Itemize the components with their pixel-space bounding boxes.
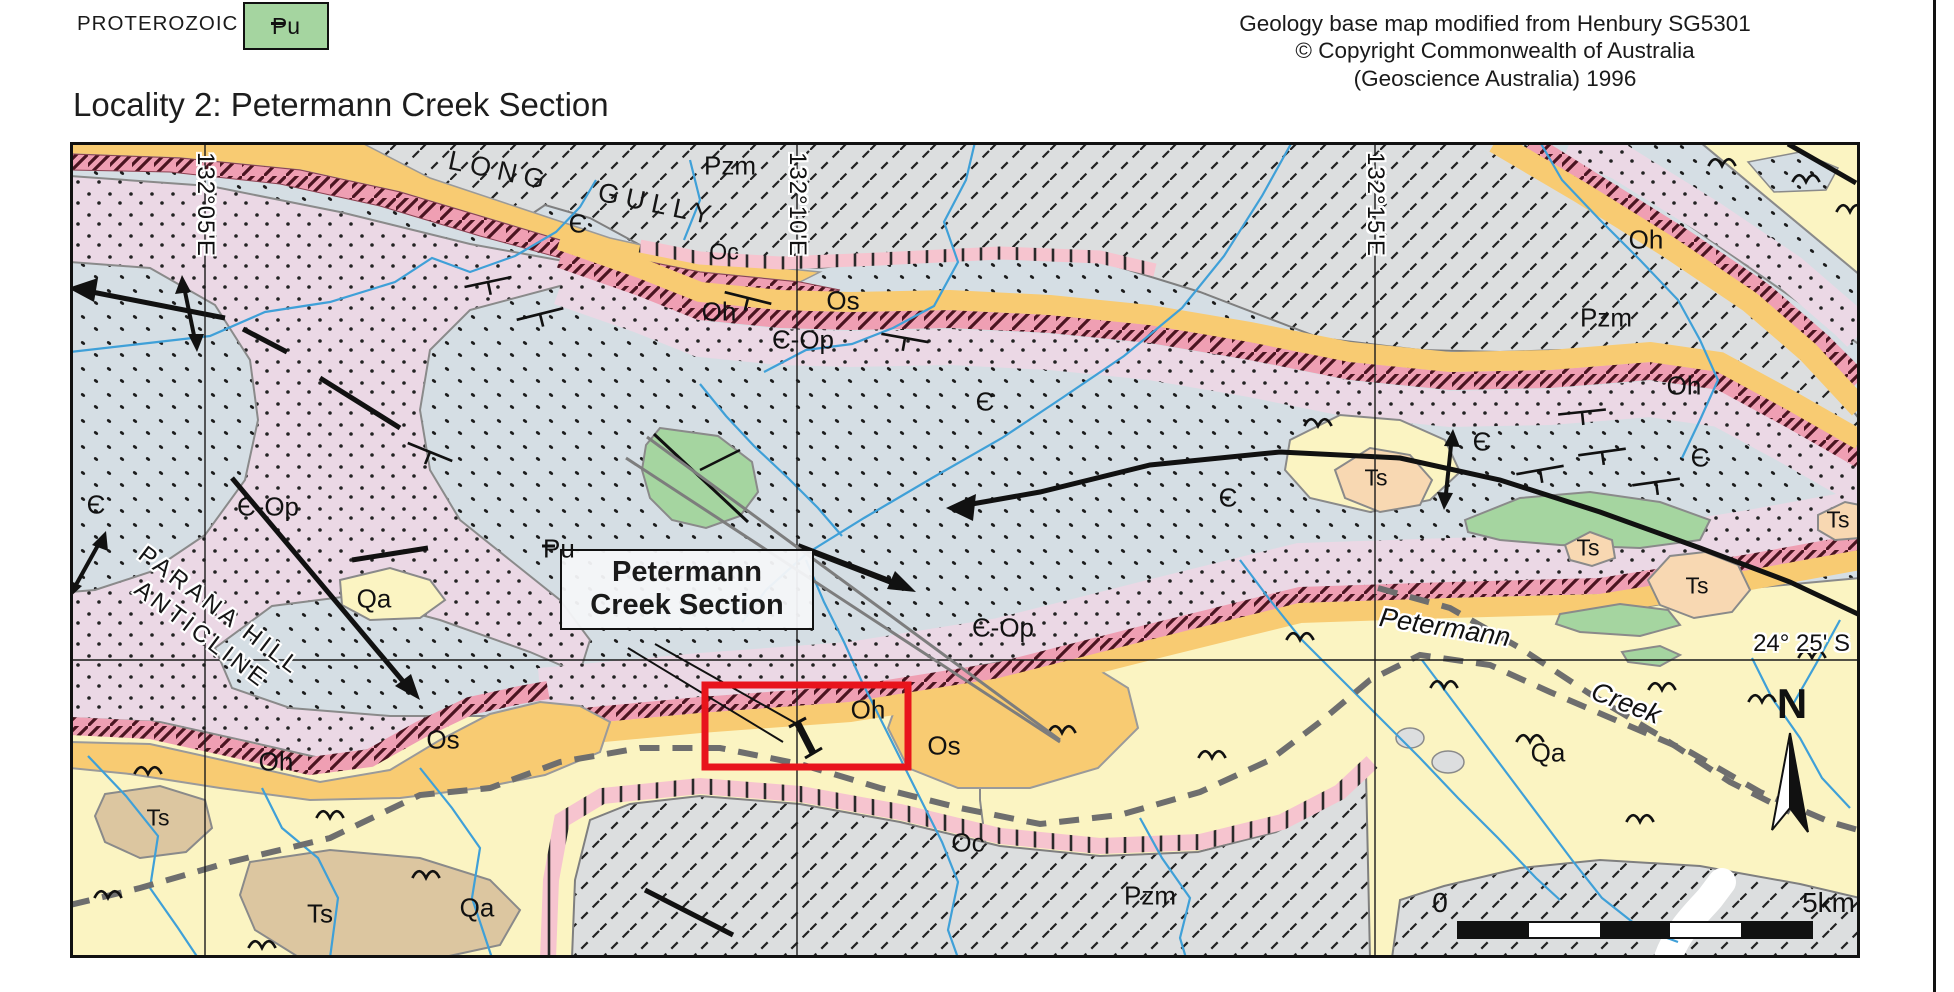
page-title: Locality 2: Petermann Creek Section [73,86,609,124]
geology-map [70,142,1860,958]
attribution-line-1: Geology base map modified from Henbury S… [1145,10,1845,37]
attribution-line-3: (Geoscience Australia) 1996 [1145,65,1845,92]
figure-right-border [1933,0,1936,992]
figure-locality2-petermann-creek: PROTEROZOIC Pu Geology base map modified… [0,0,1954,992]
legend-era-label: PROTEROZOIC [77,12,238,36]
map-attribution: Geology base map modified from Henbury S… [1145,10,1845,92]
attribution-line-2: © Copyright Commonwealth of Australia [1145,37,1845,64]
unit-pzm-pocket-2 [1432,751,1464,773]
legend-swatch-pu: Pu [243,2,329,50]
legend-unit-code: Pu [272,13,300,40]
